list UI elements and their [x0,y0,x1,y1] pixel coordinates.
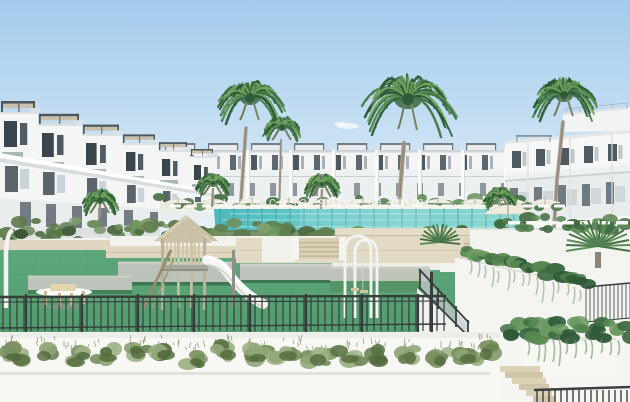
svg-text:www.casa-solvasa.com: www.casa-solvasa.com [223,195,427,211]
